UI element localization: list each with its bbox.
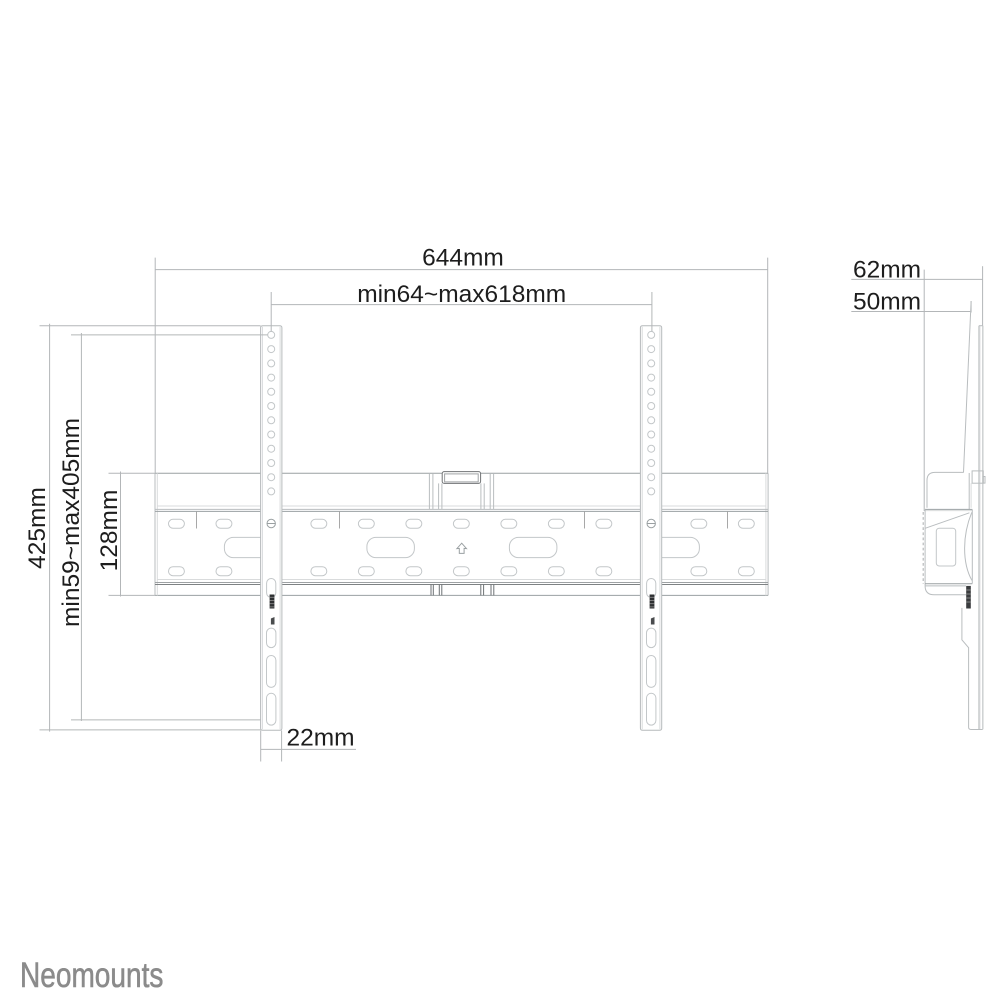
svg-text:425mm: 425mm: [24, 487, 51, 569]
svg-text:22mm: 22mm: [287, 725, 355, 752]
svg-text:128mm: 128mm: [96, 490, 123, 572]
svg-text:644mm: 644mm: [422, 245, 504, 272]
svg-text:Neomounts: Neomounts: [20, 955, 163, 995]
svg-text:min64~max618mm: min64~max618mm: [357, 281, 566, 308]
